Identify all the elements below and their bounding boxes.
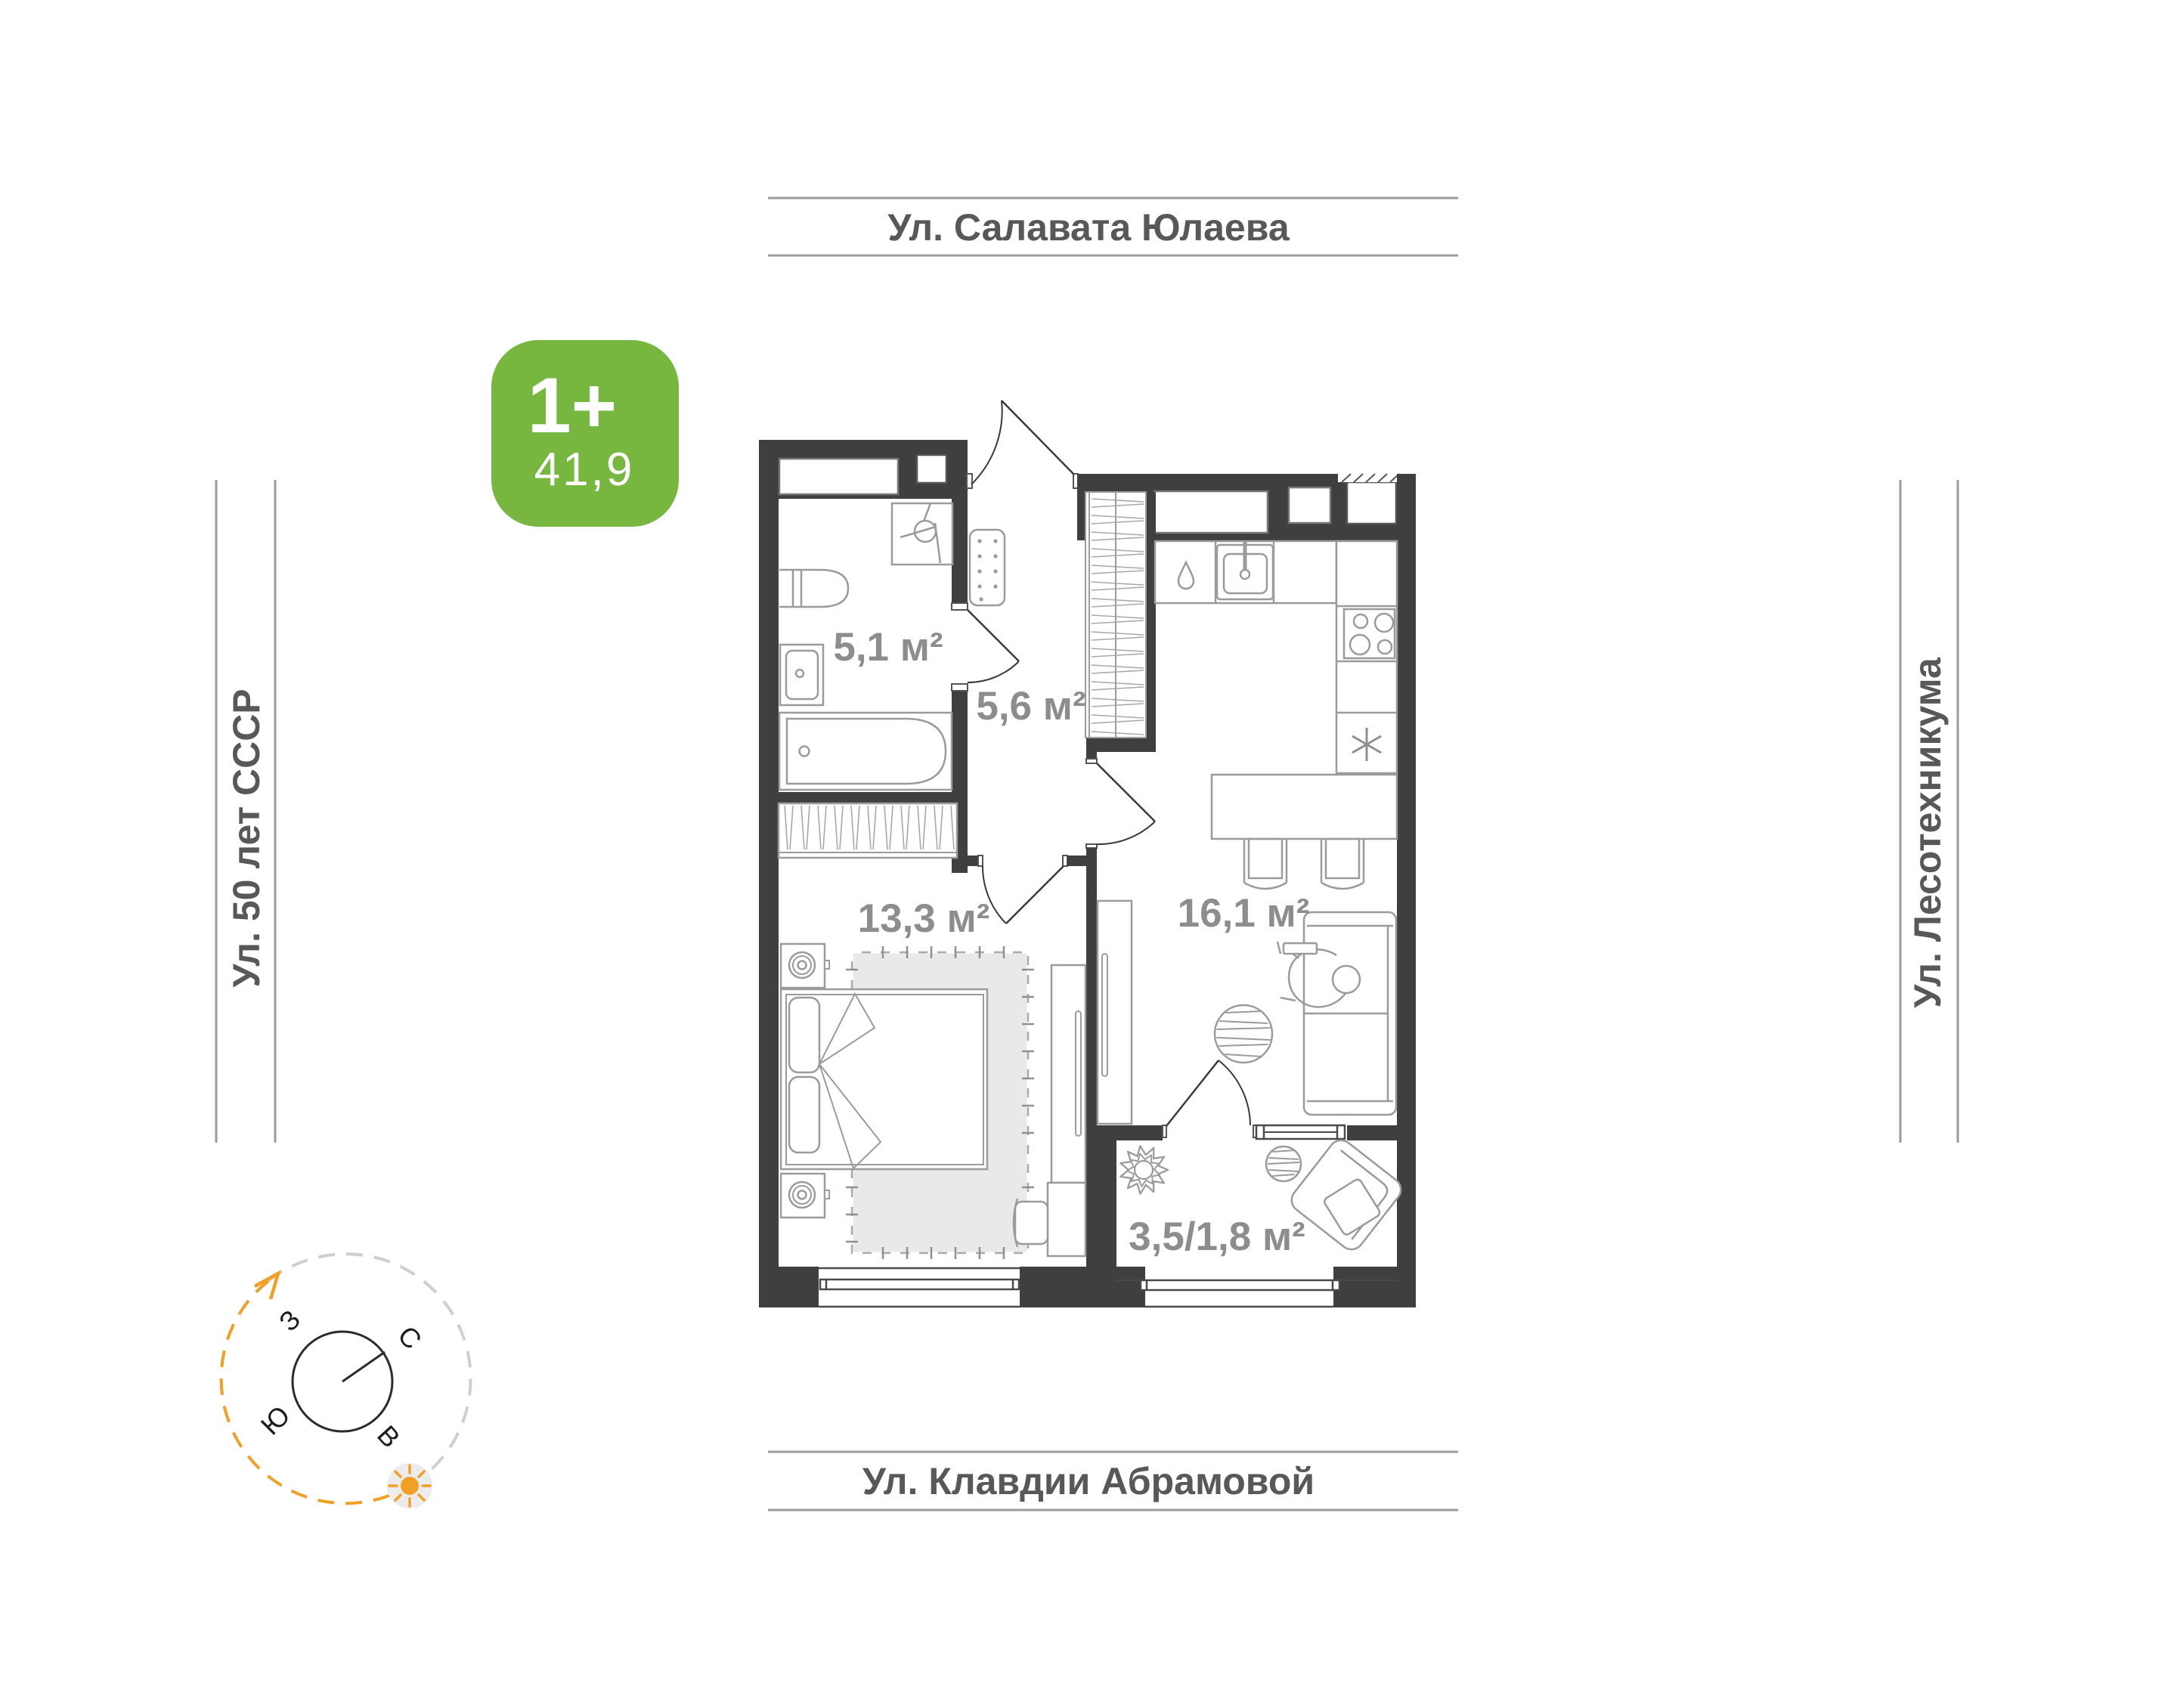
svg-text:3,5/1,8 м²: 3,5/1,8 м² <box>1129 1214 1305 1259</box>
svg-text:Ул. Лесотехникума: Ул. Лесотехникума <box>1906 657 1949 1008</box>
svg-text:41,9: 41,9 <box>534 444 635 496</box>
svg-text:5,1 м²: 5,1 м² <box>833 625 943 670</box>
svg-text:Ул. Клавдии Абрамовой: Ул. Клавдии Абрамовой <box>862 1460 1315 1502</box>
svg-text:1+: 1+ <box>528 362 618 450</box>
svg-text:Ул. Салавата Юлаева: Ул. Салавата Юлаева <box>887 206 1290 249</box>
svg-text:Ул. 50 лет СССР: Ул. 50 лет СССР <box>225 688 268 987</box>
svg-text:16,1 м²: 16,1 м² <box>1178 891 1310 936</box>
svg-text:13,3 м²: 13,3 м² <box>858 896 990 941</box>
svg-text:5,6 м²: 5,6 м² <box>976 684 1085 729</box>
